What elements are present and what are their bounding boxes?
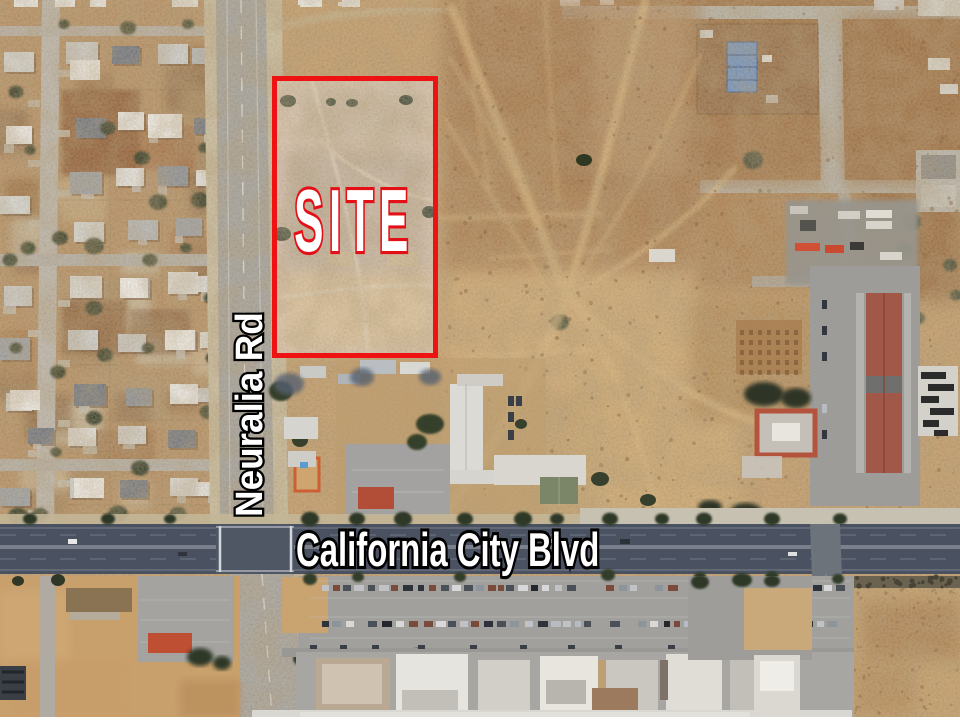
svg-text:SITE: SITE [294, 171, 414, 270]
svg-text:California City Blvd: California City Blvd [296, 523, 599, 576]
svg-text:Neuralia Rd: Neuralia Rd [227, 312, 270, 517]
